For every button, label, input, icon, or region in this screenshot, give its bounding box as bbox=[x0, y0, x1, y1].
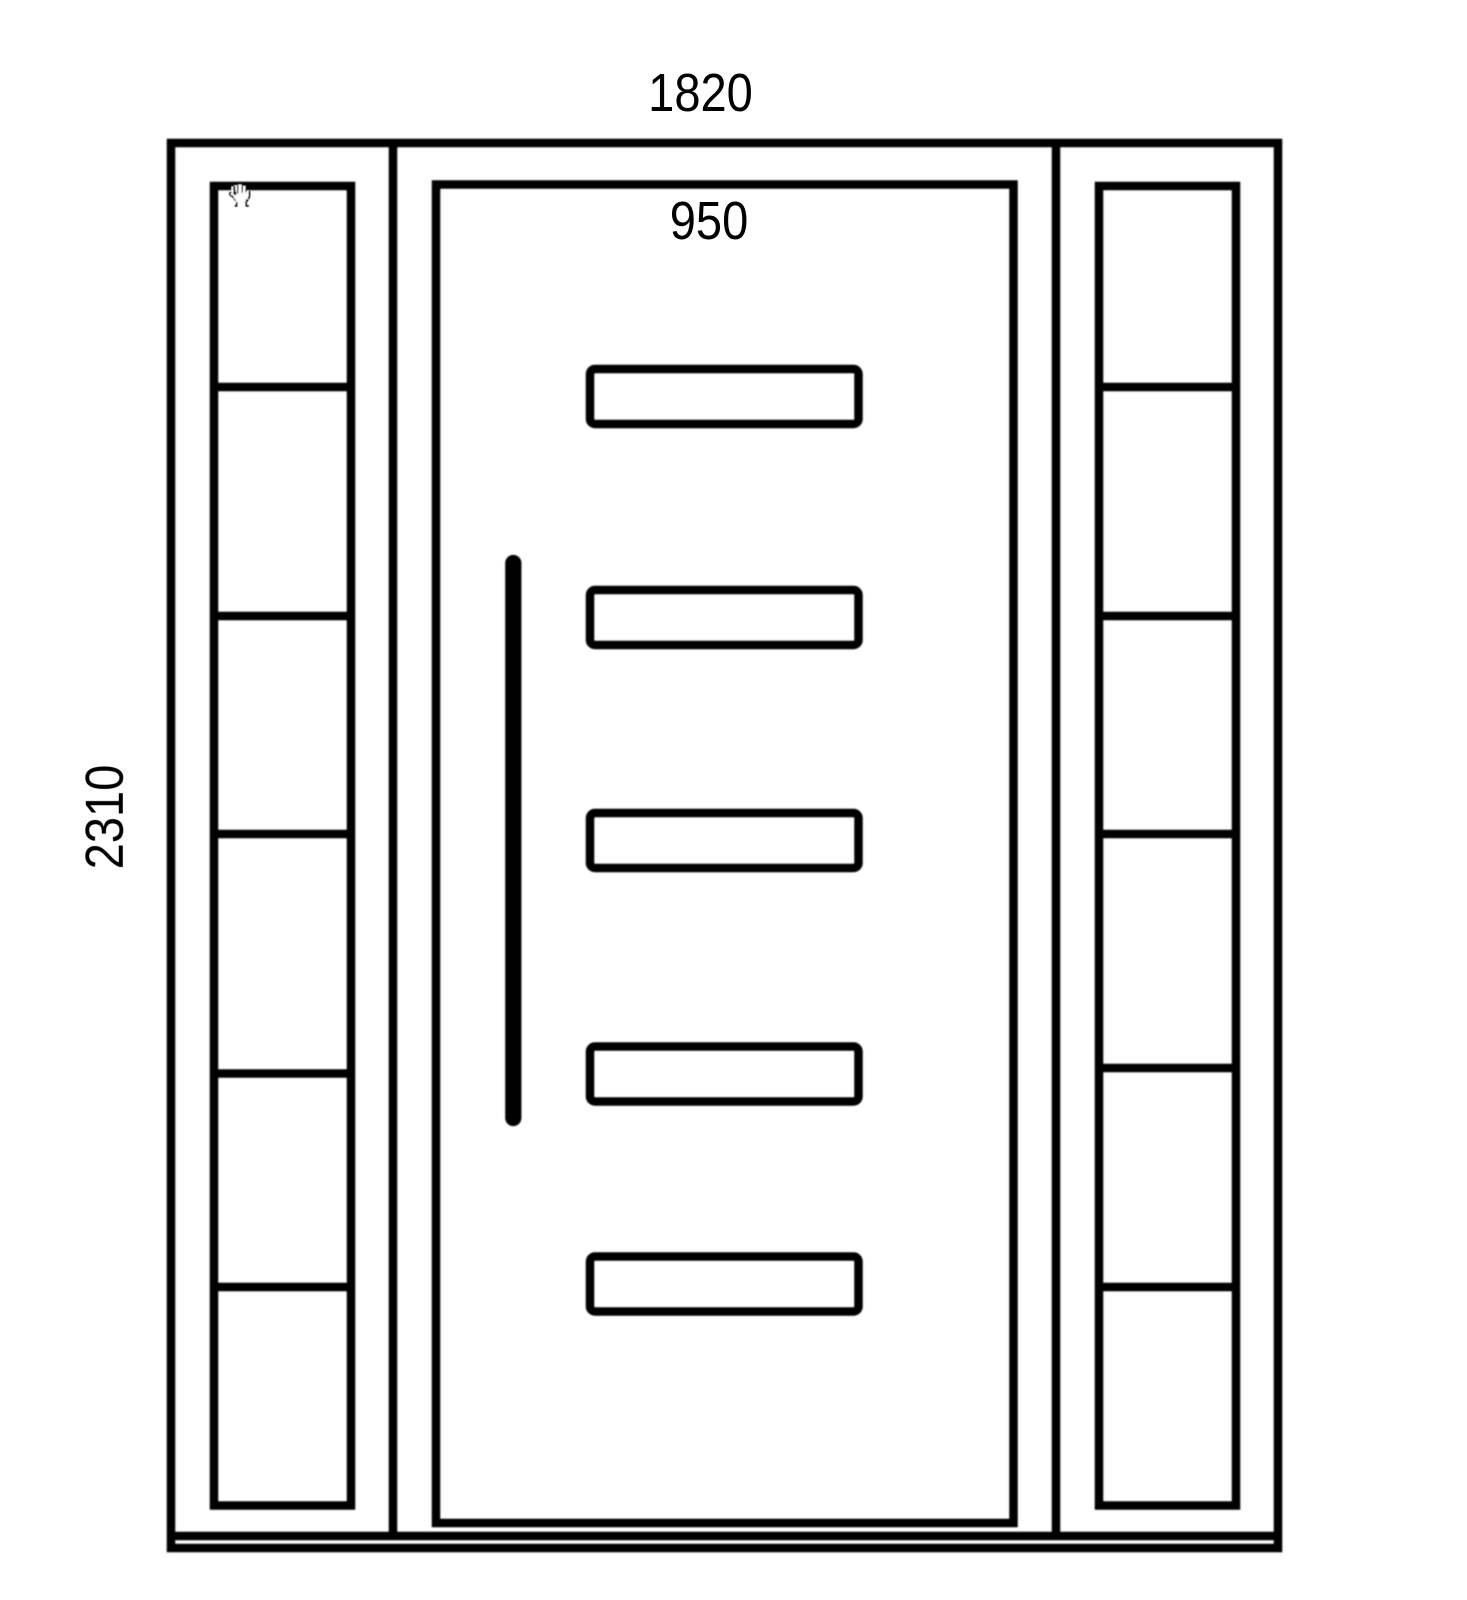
svg-text:1820: 1820 bbox=[648, 62, 753, 123]
svg-text:2310: 2310 bbox=[74, 765, 135, 870]
svg-text:950: 950 bbox=[670, 190, 749, 251]
